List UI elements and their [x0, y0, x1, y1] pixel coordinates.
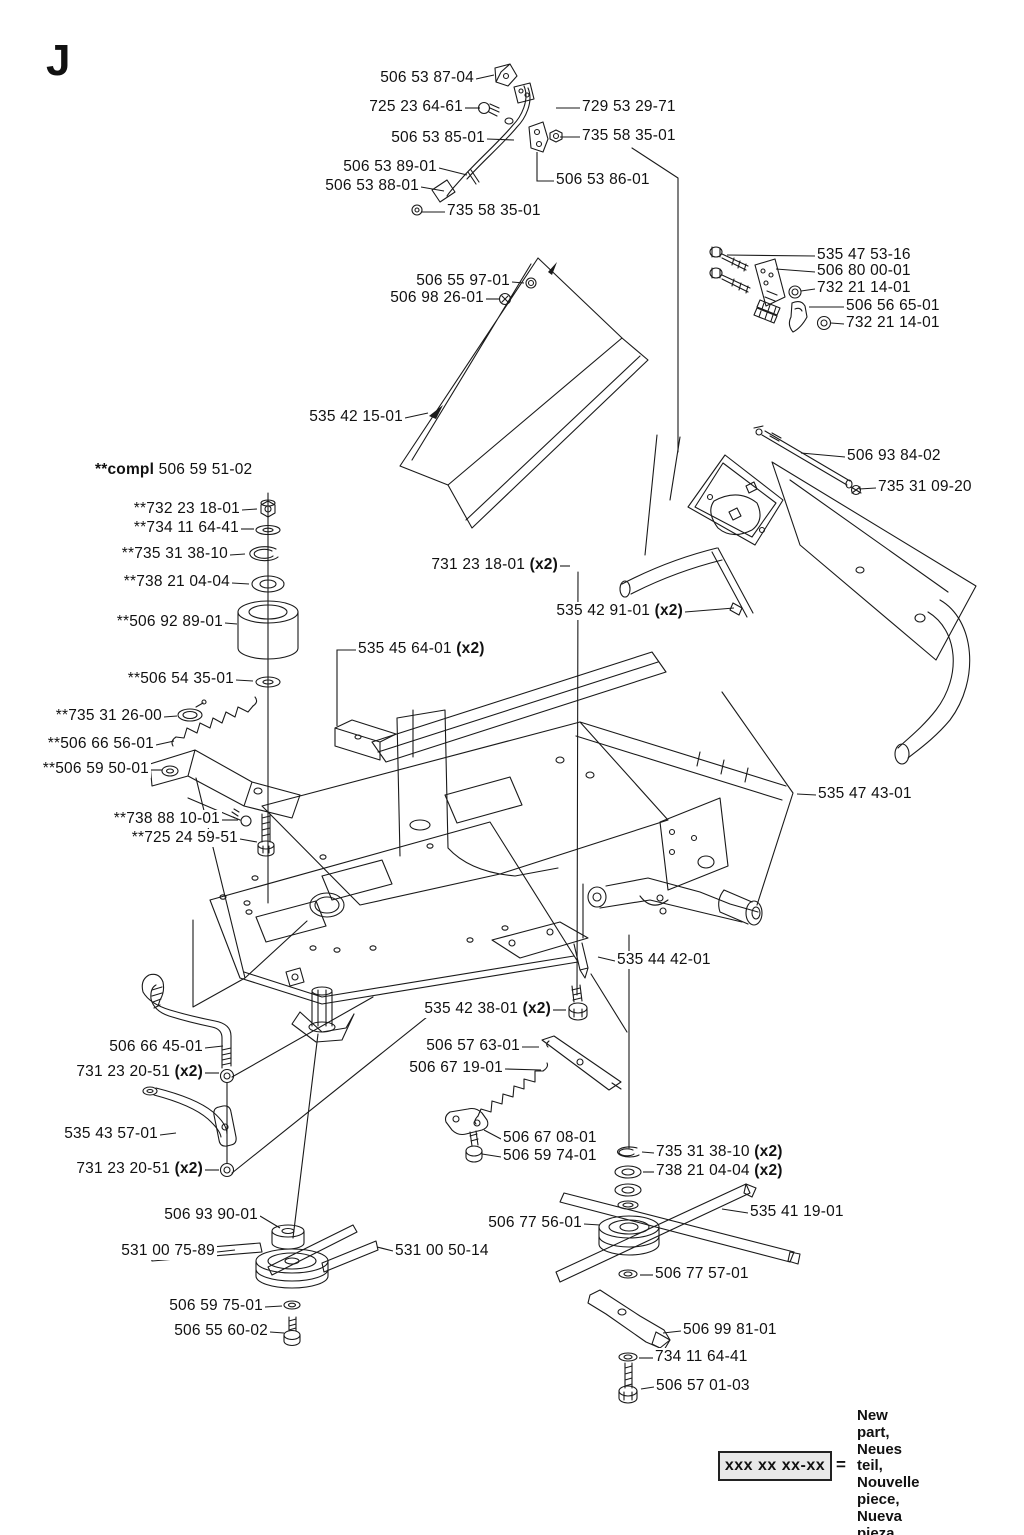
part-label: 506 53 85-01: [389, 129, 487, 147]
legend-line-de: Neues teil,: [857, 1442, 920, 1476]
legend-line-fr: Nouvelle piece,: [857, 1475, 920, 1509]
part-label: 531 00 50-14: [393, 1242, 491, 1260]
part-label: 731 23 18-01 (x2): [429, 556, 560, 574]
part-label: 506 77 56-01: [486, 1214, 584, 1232]
part-label: 506 55 60-02: [172, 1322, 270, 1340]
part-label: 535 47 53-16: [815, 246, 913, 264]
part-label: 535 47 43-01: [816, 785, 914, 803]
part-label: **734 11 64-41: [132, 519, 241, 537]
part-label: 535 42 91-01 (x2): [554, 602, 685, 620]
part-labels-layer: 506 53 87-04725 23 64-61729 53 29-71506 …: [0, 0, 1024, 1535]
part-label: 506 77 57-01: [653, 1265, 751, 1283]
part-label: **735 31 38-10: [120, 545, 230, 563]
part-label: 735 31 38-10 (x2): [654, 1143, 785, 1161]
legend-translations: New part, Neues teil, Nouvelle piece, Nu…: [857, 1408, 920, 1535]
part-label: 506 59 75-01: [167, 1297, 265, 1315]
part-label: 738 21 04-04 (x2): [654, 1162, 785, 1180]
part-label: 506 53 86-01: [554, 171, 652, 189]
part-label: 506 57 63-01: [424, 1037, 522, 1055]
part-label: **506 54 35-01: [126, 670, 236, 688]
part-label: 731 23 20-51 (x2): [74, 1160, 205, 1178]
part-label: 535 42 38-01 (x2): [422, 1000, 553, 1018]
part-label: **725 24 59-51: [130, 829, 240, 847]
part-label: **506 66 56-01: [46, 735, 156, 753]
part-label: **compl 506 59 51-02: [93, 461, 254, 479]
part-label: 506 59 74-01: [501, 1147, 599, 1165]
part-label: **738 21 04-04: [122, 573, 232, 591]
parts-diagram-page: J: [0, 0, 1024, 1535]
part-label: 506 99 81-01: [681, 1321, 779, 1339]
part-label: 531 00 75-89: [119, 1242, 217, 1260]
part-label: 535 45 64-01 (x2): [356, 640, 487, 658]
part-label: 506 98 26-01: [388, 289, 486, 307]
part-label: 506 93 84-02: [845, 447, 943, 465]
part-label: 506 67 19-01: [407, 1059, 505, 1077]
part-label: **506 92 89-01: [115, 613, 225, 631]
part-label: 506 93 90-01: [162, 1206, 260, 1224]
part-label: 732 21 14-01: [844, 314, 942, 332]
part-label: 535 42 15-01: [307, 408, 405, 426]
part-label: 735 58 35-01: [580, 127, 678, 145]
part-label: 535 41 19-01: [748, 1203, 846, 1221]
part-label: 506 55 97-01: [414, 272, 512, 290]
new-part-code-box: xxx xx xx-xx: [718, 1451, 832, 1481]
part-label: 731 23 20-51 (x2): [74, 1063, 205, 1081]
part-label: 506 67 08-01: [501, 1129, 599, 1147]
part-label: 506 80 00-01: [815, 262, 913, 280]
legend-equals-sign: =: [836, 1455, 846, 1475]
part-label: **735 31 26-00: [54, 707, 164, 725]
part-label: 535 43 57-01: [62, 1125, 160, 1143]
part-label: 729 53 29-71: [580, 98, 678, 116]
part-label: 506 53 89-01: [341, 158, 439, 176]
part-label: 735 31 09-20: [876, 478, 974, 496]
part-label: 734 11 64-41: [653, 1348, 750, 1366]
part-label: **506 59 50-01: [41, 760, 151, 778]
legend-line-en: New part,: [857, 1408, 920, 1442]
part-label: 506 66 45-01: [107, 1038, 205, 1056]
part-label: 732 21 14-01: [815, 279, 913, 297]
part-label: 506 53 88-01: [323, 177, 421, 195]
part-label: **732 23 18-01: [132, 500, 242, 518]
part-label: **738 88 10-01: [112, 810, 222, 828]
part-label: 535 44 42-01: [615, 951, 713, 969]
part-label: 506 57 01-03: [654, 1377, 752, 1395]
part-label: 506 53 87-04: [378, 69, 476, 87]
part-label: 735 58 35-01: [445, 202, 543, 220]
new-part-code-text: xxx xx xx-xx: [725, 1457, 825, 1475]
legend-line-es: Nueva pieza,: [857, 1509, 920, 1535]
part-label: 506 56 65-01: [844, 297, 942, 315]
part-label: 725 23 64-61: [367, 98, 465, 116]
